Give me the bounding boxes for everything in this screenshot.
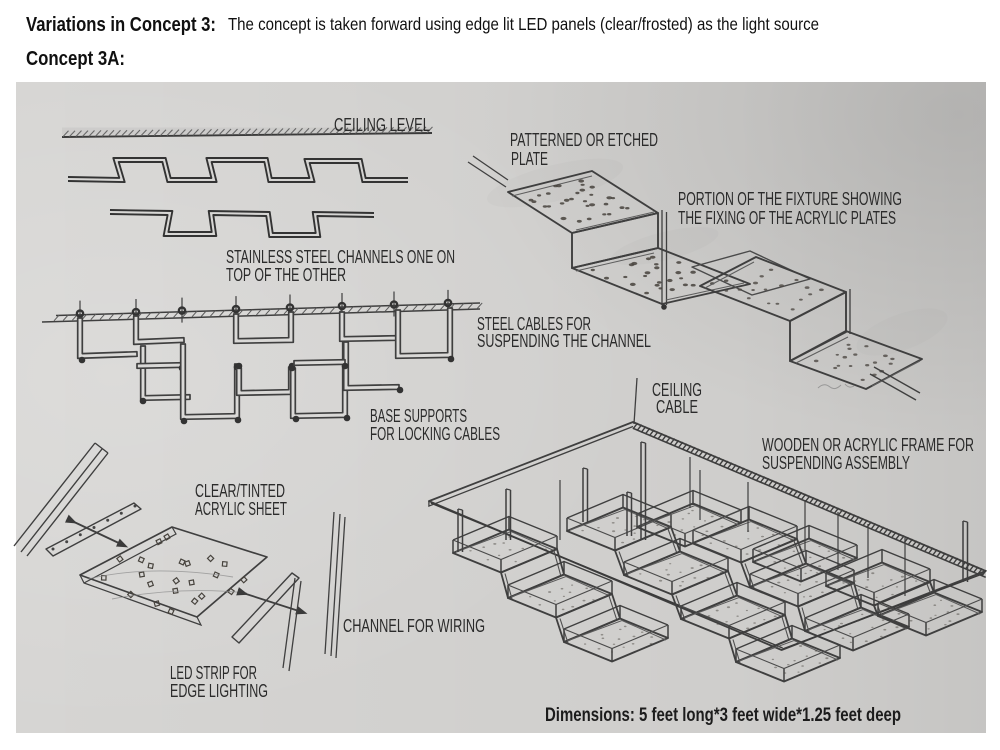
svg-text:PLATE: PLATE: [511, 148, 548, 169]
svg-text:PATTERNED OR ETCHED: PATTERNED OR ETCHED: [510, 129, 658, 150]
svg-text:Dimensions: 5 feet long*3 feet: Dimensions: 5 feet long*3 feet wide*1.25…: [545, 704, 901, 726]
svg-text:EDGE LIGHTING: EDGE LIGHTING: [170, 680, 268, 701]
svg-text:PORTION OF THE FIXTURE SHOWING: PORTION OF THE FIXTURE SHOWING: [678, 188, 902, 209]
svg-text:SUSPENDING THE CHANNEL: SUSPENDING THE CHANNEL: [477, 330, 651, 351]
svg-text:SUSPENDING ASSEMBLY: SUSPENDING ASSEMBLY: [762, 452, 910, 473]
svg-text:FOR LOCKING CABLES: FOR LOCKING CABLES: [370, 423, 500, 444]
svg-text:The concept is taken forward u: The concept is taken forward using edge …: [228, 14, 819, 34]
svg-text:THE FIXING OF THE ACRYLIC PLAT: THE FIXING OF THE ACRYLIC PLATES: [678, 207, 896, 228]
svg-text:CHANNEL FOR WIRING: CHANNEL FOR WIRING: [343, 615, 485, 636]
svg-text:TOP OF THE OTHER: TOP OF THE OTHER: [226, 264, 346, 285]
svg-text:CEILING LEVEL: CEILING LEVEL: [334, 114, 430, 135]
svg-text:Variations in Concept 3:: Variations in Concept 3:: [26, 13, 216, 36]
svg-text:Concept 3A:: Concept 3A:: [26, 47, 125, 70]
svg-text:ACRYLIC SHEET: ACRYLIC SHEET: [195, 498, 287, 519]
svg-text:CABLE: CABLE: [656, 396, 698, 417]
